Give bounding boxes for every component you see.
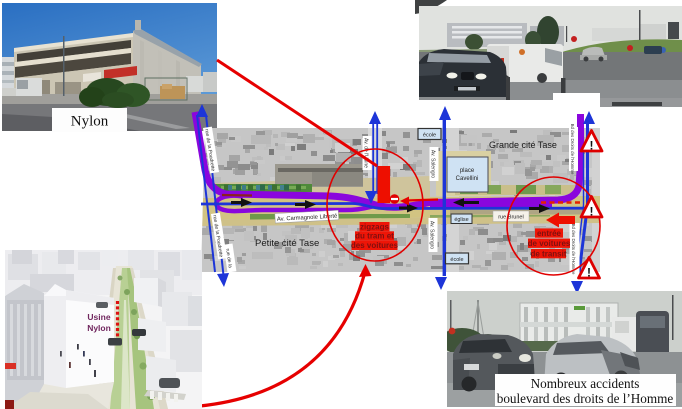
svg-text:Usine: Usine (87, 312, 110, 322)
svg-text:Nombreux accidents: Nombreux accidents (531, 376, 640, 391)
svg-text:zigzags: zigzags (360, 222, 389, 231)
svg-text:Nylon: Nylon (87, 323, 111, 333)
svg-text:place: place (460, 168, 475, 174)
svg-text:école: école (450, 257, 463, 263)
svg-text:école: école (423, 133, 436, 139)
svg-text:rue Brunel: rue Brunel (498, 215, 523, 221)
svg-text:!: ! (587, 266, 591, 280)
svg-text:Av. de l'Usine: Av. de l'Usine (363, 138, 369, 168)
svg-text:!: ! (590, 205, 594, 219)
svg-text:Av. Salengro: Av. Salengro (429, 221, 435, 249)
svg-text:Bd des Droits de l'Homme: Bd des Droits de l'Homme (571, 224, 576, 275)
svg-text:Bd des Droits de l'Homme: Bd des Droits de l'Homme (570, 124, 575, 175)
svg-text:Grande cité Tase: Grande cité Tase (489, 140, 557, 150)
svg-text:Nylon: Nylon (71, 114, 109, 130)
svg-text:de voitures: de voitures (528, 239, 571, 248)
svg-text:boulevard des droits de l’Homm: boulevard des droits de l’Homme (497, 391, 674, 406)
svg-text:église: église (454, 217, 468, 223)
svg-text:Av. Salengro: Av. Salengro (430, 150, 436, 178)
svg-text:entrée: entrée (537, 229, 562, 238)
svg-text:Petite cité Tase: Petite cité Tase (255, 238, 319, 249)
svg-text:du tram et: du tram et (355, 232, 394, 241)
svg-text:Cavellini: Cavellini (456, 176, 479, 182)
svg-text:!: ! (590, 139, 594, 153)
svg-text:des voitures: des voitures (351, 241, 399, 250)
svg-text:de transit: de transit (530, 249, 566, 258)
